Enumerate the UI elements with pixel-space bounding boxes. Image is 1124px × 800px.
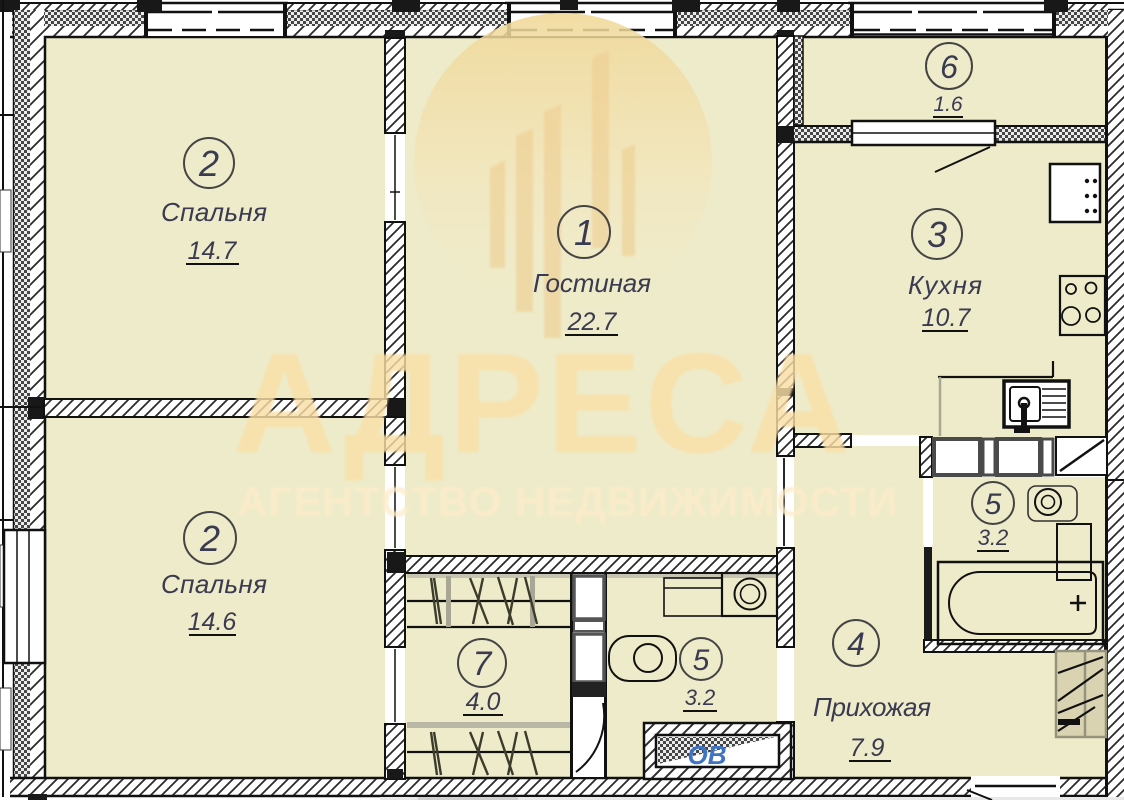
svg-text:1: 1: [574, 212, 594, 253]
svg-text:ОВ: ОВ: [688, 740, 727, 770]
svg-text:10.7: 10.7: [922, 304, 972, 332]
svg-text:Прихожая: Прихожая: [813, 692, 931, 722]
svg-text:6: 6: [940, 49, 958, 85]
svg-text:4.0: 4.0: [466, 688, 501, 716]
svg-text:АГЕНТСТВО НЕДВИЖИМОСТИ: АГЕНТСТВО НЕДВИЖИМОСТИ: [237, 478, 897, 525]
svg-text:Спальня: Спальня: [161, 569, 267, 599]
svg-text:5: 5: [693, 644, 710, 677]
svg-text:3.2: 3.2: [978, 525, 1009, 550]
svg-text:Кухня: Кухня: [908, 270, 982, 300]
svg-text:3: 3: [927, 214, 947, 255]
svg-text:2: 2: [198, 143, 219, 184]
svg-text:14.7: 14.7: [188, 237, 238, 265]
svg-text:АДРЕСА: АДРЕСА: [233, 324, 850, 483]
svg-text:7: 7: [473, 645, 493, 683]
svg-text:1.6: 1.6: [933, 93, 963, 116]
svg-text:2: 2: [199, 518, 220, 559]
svg-text:4: 4: [847, 626, 865, 662]
svg-text:Гостиная: Гостиная: [533, 268, 651, 298]
svg-text:7.9: 7.9: [850, 734, 885, 762]
svg-text:Спальня: Спальня: [161, 197, 267, 227]
svg-text:22.7: 22.7: [567, 308, 618, 336]
svg-text:3.2: 3.2: [685, 685, 716, 710]
svg-text:5: 5: [985, 488, 1002, 521]
svg-text:14.6: 14.6: [188, 608, 237, 636]
